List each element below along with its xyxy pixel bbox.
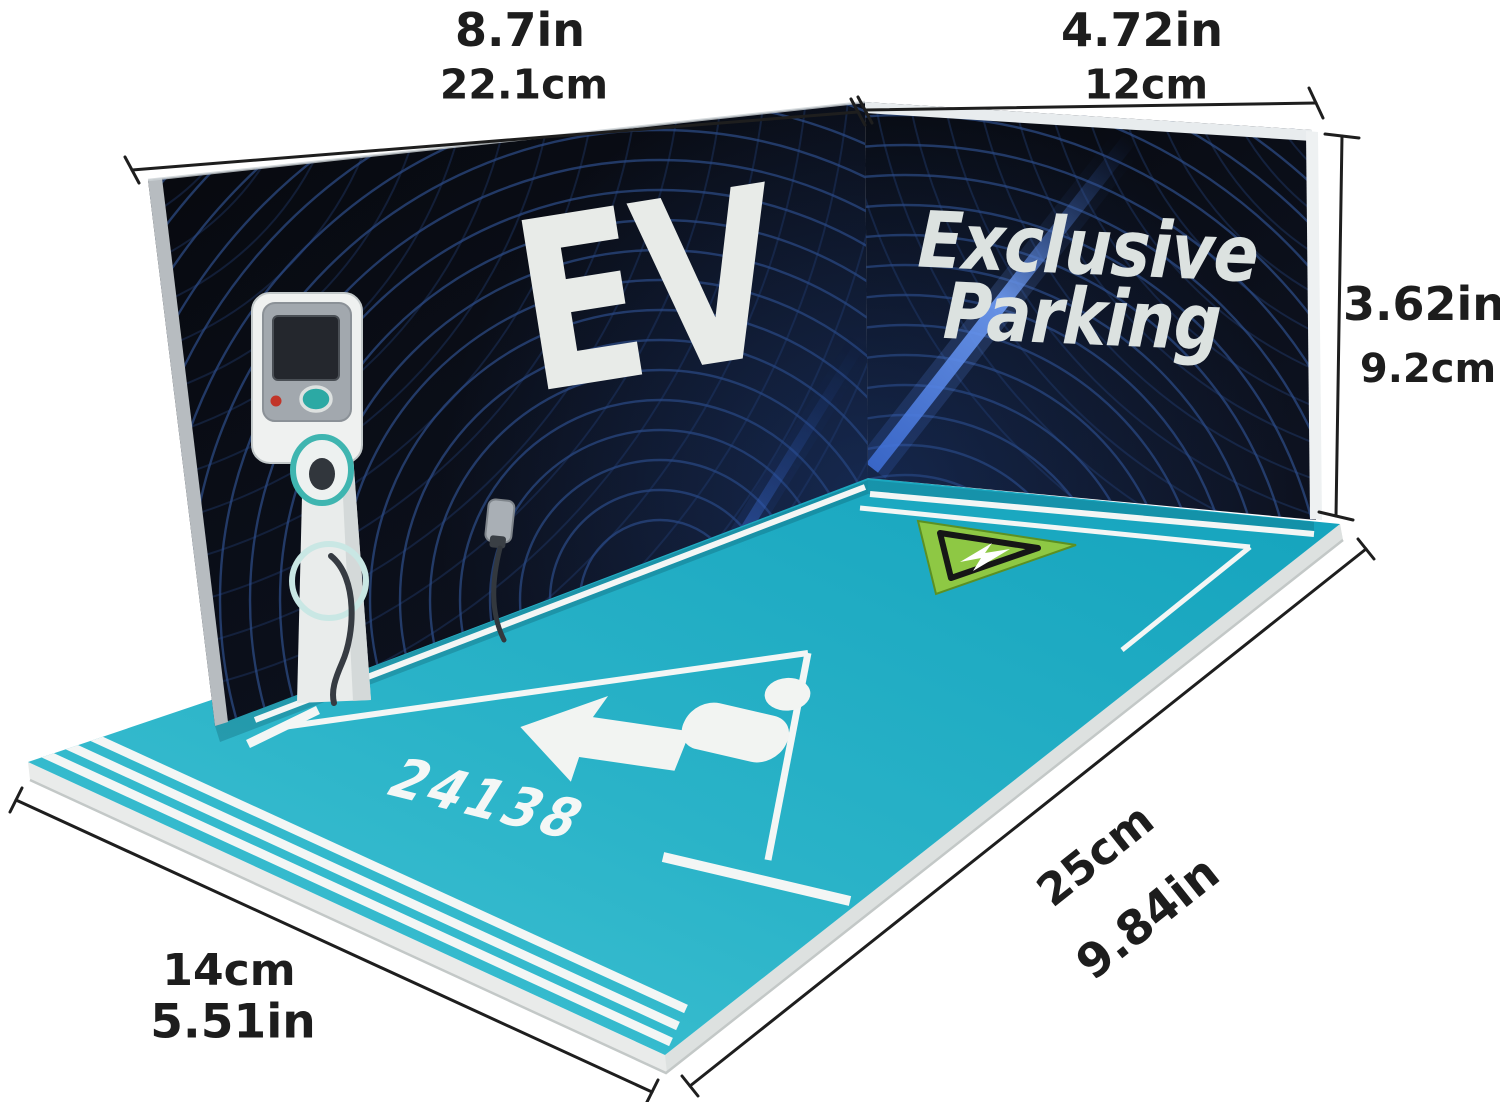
dim-wall-height-cm: 9.2cm [1360, 349, 1496, 389]
charger-screen [273, 316, 339, 380]
charger-indicator-light [271, 396, 282, 407]
dim-wall-length-cm: 22.1cm [440, 65, 608, 106]
dim-wall-height-inches: 3.62in [1343, 281, 1500, 327]
right-wall-text-line2: Parking [942, 267, 1223, 369]
dim-floor-depth-inches: 5.51in [150, 999, 316, 1046]
charger-button [301, 387, 331, 411]
left-wall-ev-text: EV [498, 137, 798, 447]
dim-wall-length-inches: 8.7in [455, 7, 585, 53]
dim-wall-width-cm: 12cm [1084, 65, 1208, 106]
dim-floor-depth-cm: 14cm [162, 949, 295, 993]
connector-dock [309, 458, 335, 490]
dim-wall-width-inches: 4.72in [1061, 7, 1223, 53]
product-photo-ev-parking-diorama: EV Exclusive Parking 24138 8.7in 22.1cm … [0, 0, 1500, 1102]
